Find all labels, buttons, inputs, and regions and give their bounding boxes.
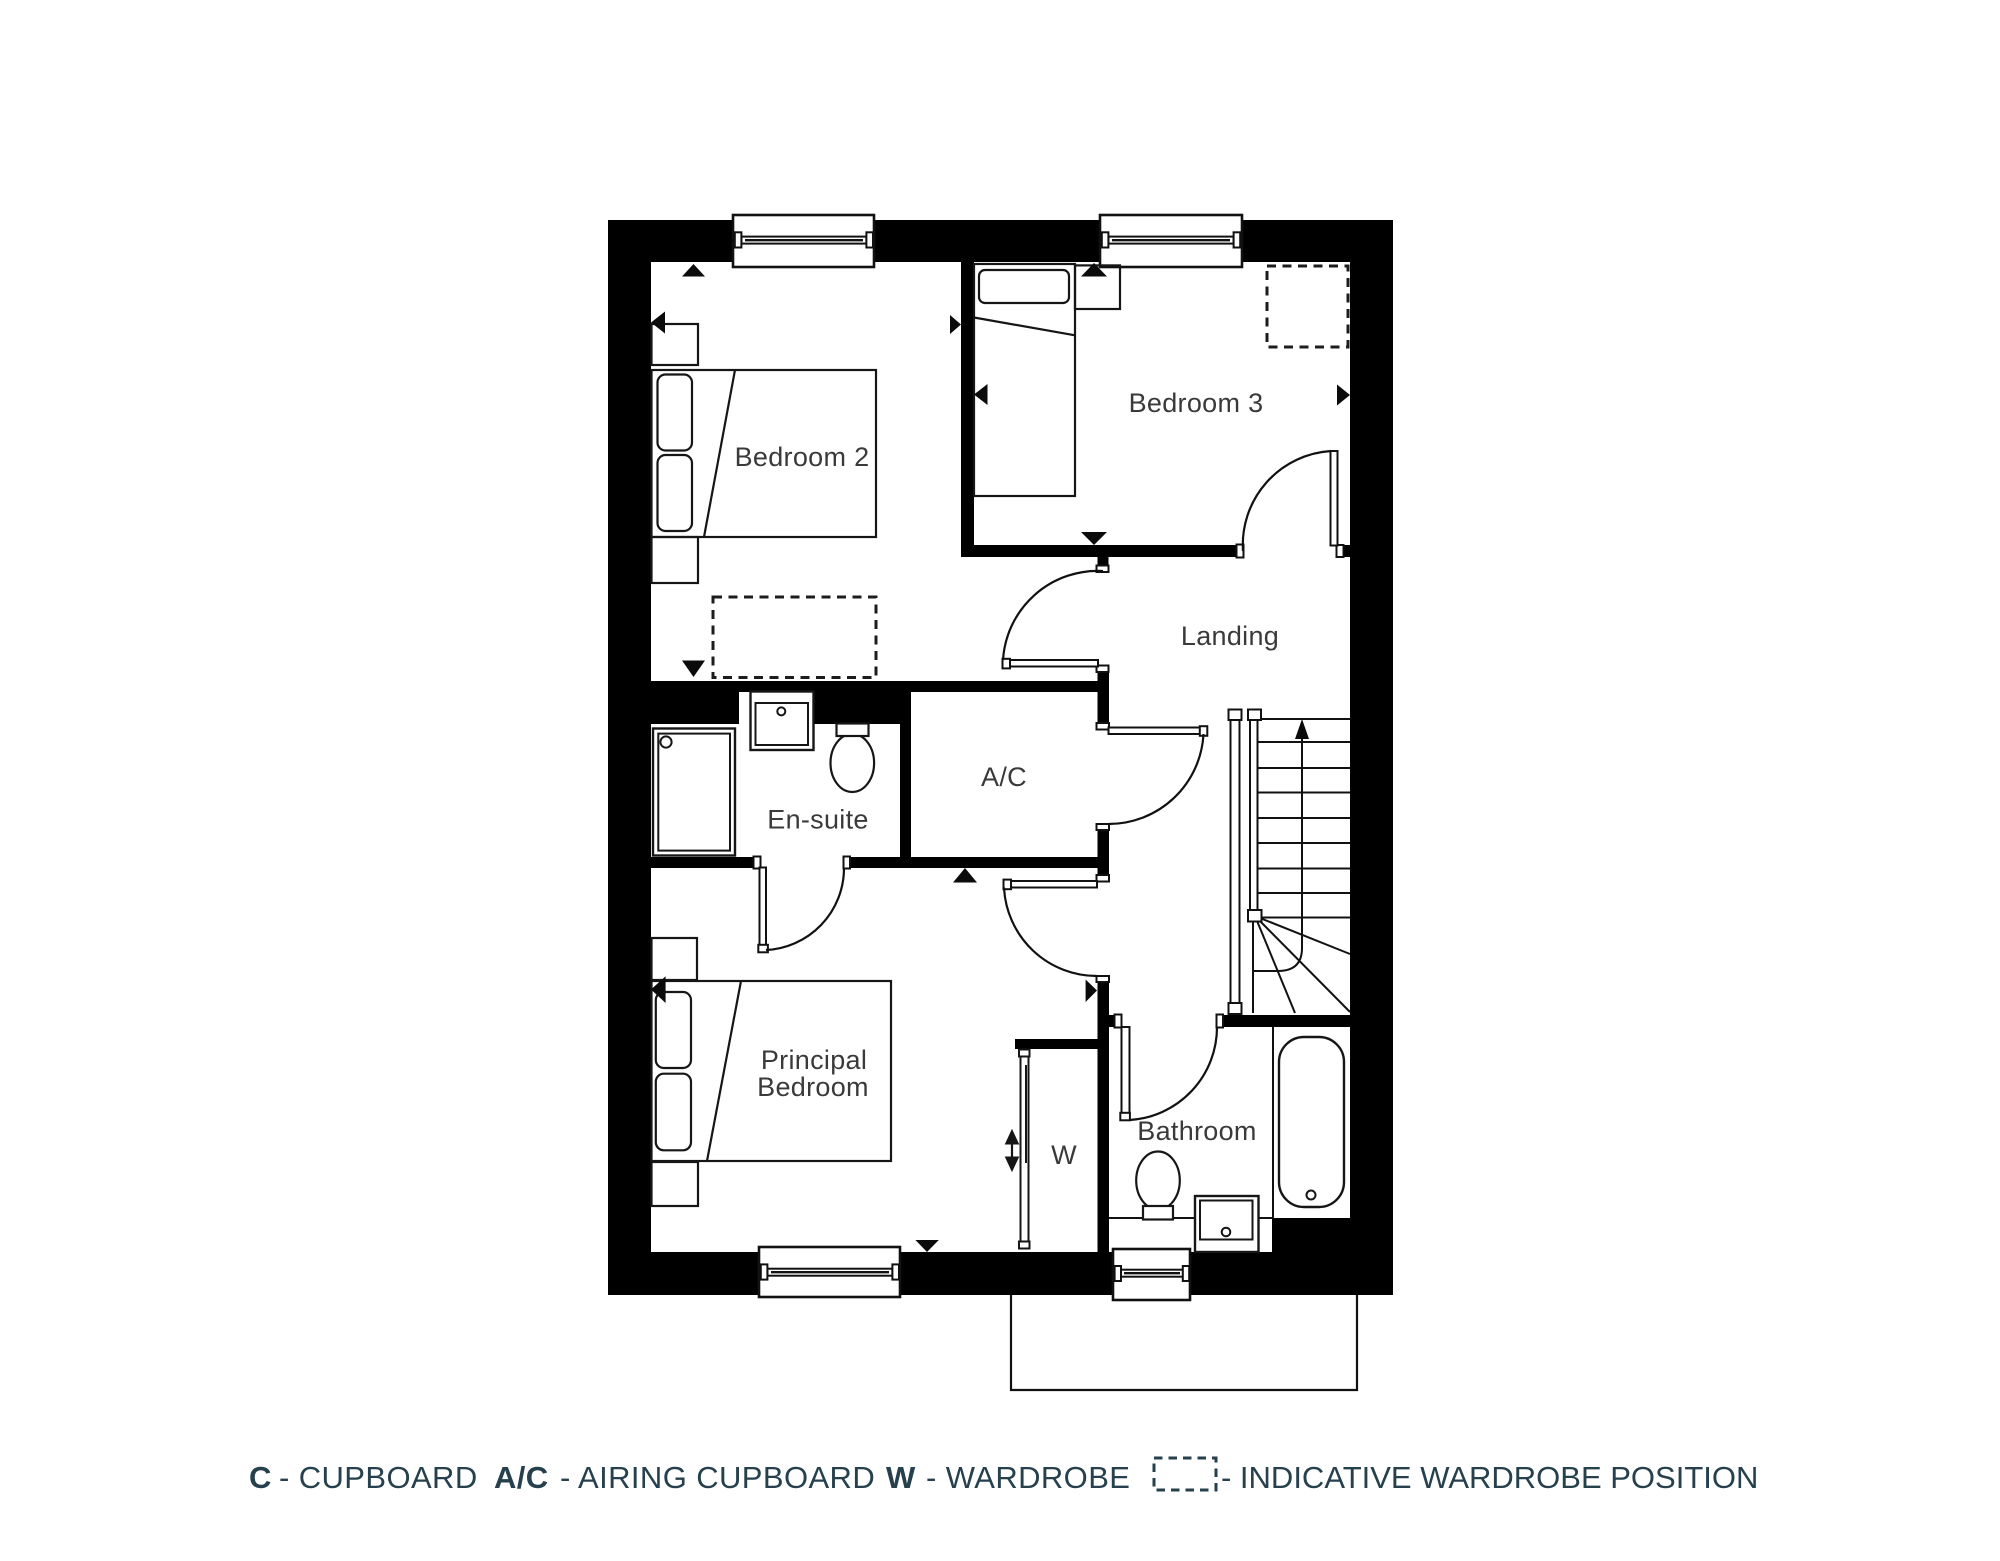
svg-text:C: C — [249, 1460, 272, 1495]
svg-text:En-suite: En-suite — [767, 805, 868, 835]
svg-text:Bathroom: Bathroom — [1137, 1116, 1256, 1146]
svg-text:Principal: Principal — [761, 1045, 867, 1075]
svg-text:Landing: Landing — [1181, 621, 1279, 651]
svg-text:Bedroom 2: Bedroom 2 — [735, 442, 870, 472]
svg-text:A/C: A/C — [981, 762, 1027, 792]
svg-text:- INDICATIVE WARDROBE POSITION: - INDICATIVE WARDROBE POSITION — [1221, 1460, 1758, 1495]
svg-text:- WARDROBE: - WARDROBE — [926, 1460, 1130, 1495]
svg-text:W: W — [886, 1460, 916, 1495]
svg-text:W: W — [1051, 1140, 1077, 1170]
svg-text:- AIRING CUPBOARD: - AIRING CUPBOARD — [560, 1460, 875, 1495]
svg-text:- CUPBOARD: - CUPBOARD — [279, 1460, 478, 1495]
svg-text:Bedroom 3: Bedroom 3 — [1129, 388, 1264, 418]
svg-text:A/C: A/C — [494, 1460, 549, 1495]
svg-text:Bedroom: Bedroom — [757, 1072, 869, 1102]
